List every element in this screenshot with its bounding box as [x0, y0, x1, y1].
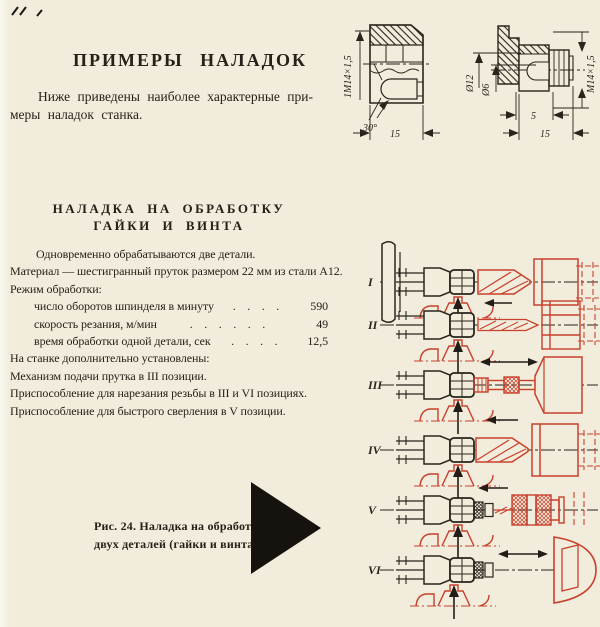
screw-width-label: 15 — [540, 129, 550, 140]
paragraph: Режим обработки: — [10, 281, 328, 298]
spec-row: скорость резания, м/мин . . . . . . 49 — [10, 316, 328, 333]
fast-drill-attachment — [512, 495, 564, 525]
position-label: II — [367, 318, 379, 332]
spec-label: число оборотов шпинделя в минуту — [34, 298, 214, 315]
intro-line: меры наладок станка. — [10, 106, 330, 124]
position-row-6: VI — [368, 537, 596, 619]
position-label: I — [367, 275, 374, 289]
spec-leader-dots: . . . . . . — [157, 316, 298, 333]
workpiece-thread — [474, 562, 483, 578]
paragraph: Материал — шестигранный пруток размером … — [10, 263, 328, 280]
spec-value: 49 — [298, 316, 328, 333]
die-head — [554, 537, 596, 603]
position-row-1: I — [367, 242, 599, 331]
spec-value: 12,5 — [298, 333, 328, 350]
intro-paragraph: Ниже приведены наиболее характерные при-… — [10, 88, 330, 124]
figure-caption-line: Рис. 24. Наладка на обработку — [94, 518, 274, 536]
spec-leader-dots: . . . . — [214, 298, 298, 315]
nut-width-label: 15 — [390, 129, 400, 140]
spec-row: число оборотов шпинделя в минуту . . . .… — [10, 298, 328, 315]
section-heading-line: НАЛАДКА НА ОБРАБОТКУ — [38, 200, 300, 217]
spec-value: 590 — [298, 298, 328, 315]
spec-row: время обработки одной детали, сек . . . … — [10, 333, 328, 350]
position-label: IV — [367, 443, 382, 457]
screw-d6-label: Ø6 — [481, 84, 492, 97]
figure-caption: Рис. 24. Наладка на обработку двух детал… — [94, 518, 274, 553]
spec-label: время обработки одной детали, сек — [34, 333, 211, 350]
paragraph: Одновременно обрабатываются две детали. — [10, 246, 328, 263]
screw-d12-label: Ø12 — [465, 75, 476, 93]
nut-angle-label: 30° — [362, 123, 377, 134]
note-line: Механизм подачи прутка в III позиции. — [10, 368, 328, 385]
position-diagram: I II III — [360, 230, 600, 627]
nut-drawing: 1М14×1,5 30° 15 — [343, 25, 440, 140]
page-title: ПРИМЕРЫ НАЛАДОК — [73, 50, 307, 71]
note-line: Приспособление для быстрого сверления в … — [10, 403, 328, 420]
scanned-manual-page: { "page": { "title": "ПРИМЕРЫ НАЛАДОК", … — [0, 0, 600, 627]
section-body: Одновременно обрабатываются две детали. … — [10, 246, 328, 420]
tool-holder — [535, 357, 582, 413]
section-heading: НАЛАДКА НА ОБРАБОТКУ ГАЙКИ И ВИНТА — [38, 200, 300, 234]
screw-step-label: 5 — [531, 111, 536, 122]
section-heading-line: ГАЙКИ И ВИНТА — [38, 217, 300, 234]
nut-thread-label: 1М14×1,5 — [343, 55, 354, 98]
black-triangle-pointer — [251, 482, 321, 574]
screw-drawing: Ø12 Ø6 М14×1,5 5 15 — [465, 26, 597, 140]
workpiece-thread — [474, 502, 483, 518]
position-row-3: III — [367, 357, 598, 434]
position-label: V — [368, 503, 377, 517]
small-drill — [493, 507, 512, 514]
dimension-drawings: 1М14×1,5 30° 15 Ø12 Ø6 М14×1,5 5 15 — [333, 0, 600, 148]
spec-leader-dots: . . . . — [211, 333, 298, 350]
screw-thread-label: М14×1,5 — [586, 55, 597, 94]
figure-caption-line: двух деталей (гайки и винта) — [94, 536, 274, 554]
bar-stock-flange — [382, 242, 395, 323]
note-line: Приспособление для нарезания резьбы в II… — [10, 385, 328, 402]
position-label: VI — [368, 563, 382, 577]
intro-line: Ниже приведены наиболее характерные при- — [10, 88, 330, 106]
scan-marks — [6, 2, 66, 20]
note-line: На станке дополнительно установлены: — [10, 350, 328, 367]
spec-label: скорость резания, м/мин — [34, 316, 157, 333]
